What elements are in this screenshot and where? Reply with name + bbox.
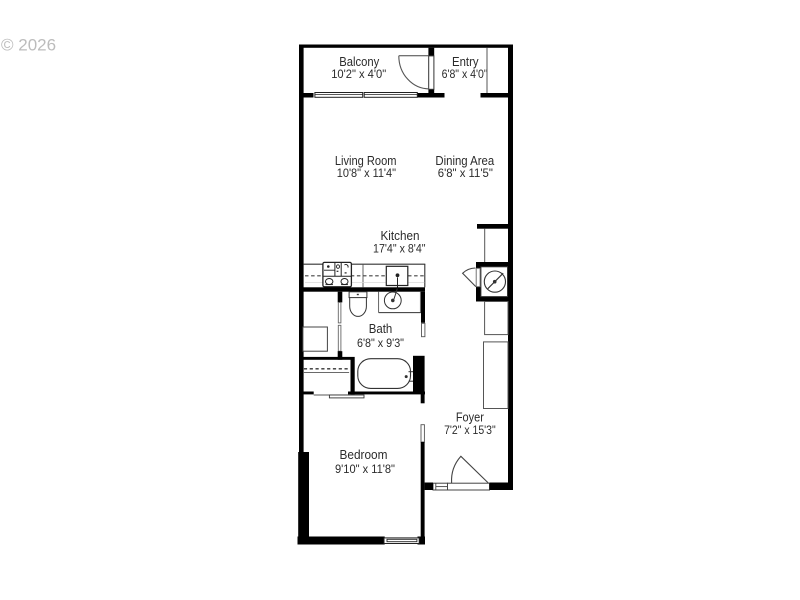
svg-text:6'8" x 11'5": 6'8" x 11'5" <box>438 166 493 180</box>
svg-text:7'2" x 15'3": 7'2" x 15'3" <box>444 423 496 437</box>
svg-text:Bath: Bath <box>369 322 393 336</box>
svg-text:10'2" x 4'0": 10'2" x 4'0" <box>331 67 386 81</box>
svg-text:17'4" x 8'4": 17'4" x 8'4" <box>373 241 426 255</box>
svg-text:10'8" x 11'4": 10'8" x 11'4" <box>337 166 396 180</box>
svg-text:9'10" x 11'8": 9'10" x 11'8" <box>335 462 395 476</box>
svg-text:© 2026: © 2026 <box>1 36 56 55</box>
svg-text:6'8" x 4'0": 6'8" x 4'0" <box>442 67 488 81</box>
svg-text:Bedroom: Bedroom <box>340 448 388 462</box>
svg-text:6'8" x 9'3": 6'8" x 9'3" <box>357 336 404 350</box>
